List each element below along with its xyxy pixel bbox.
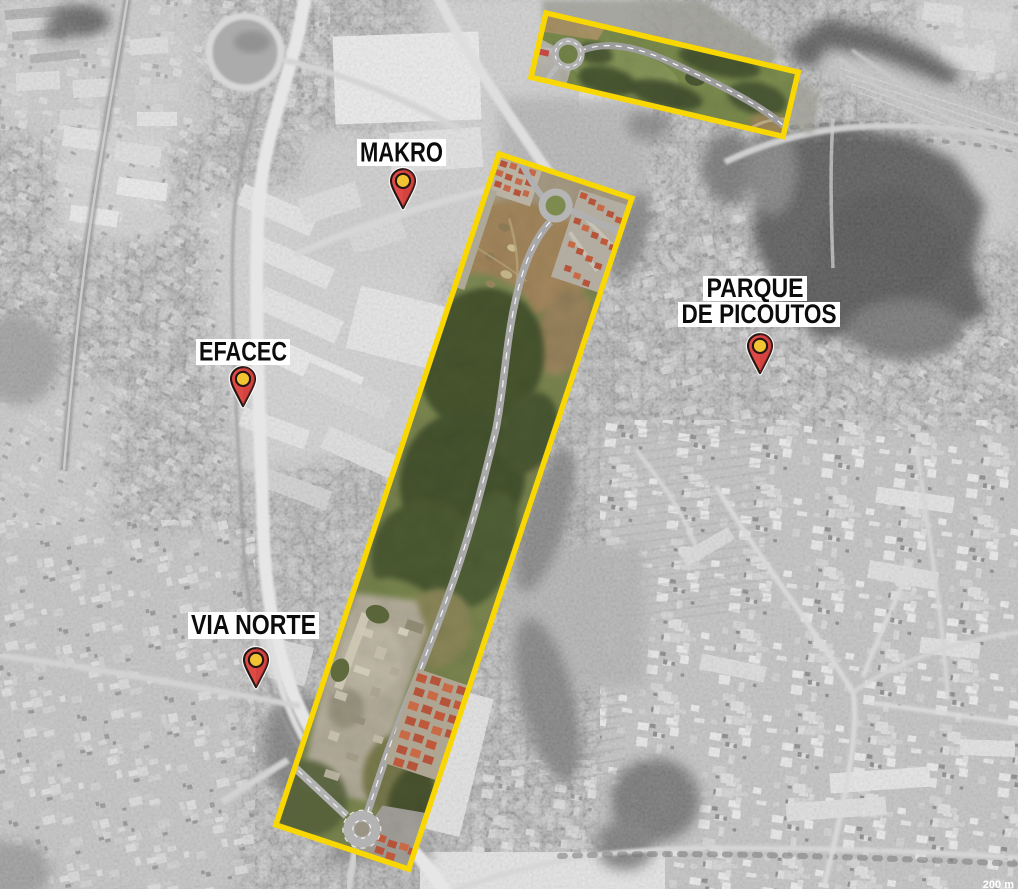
svg-text:EFACEC: EFACEC bbox=[199, 337, 287, 367]
svg-text:MAKRO: MAKRO bbox=[360, 137, 443, 168]
svg-text:200 m: 200 m bbox=[983, 879, 1014, 889]
svg-text:VIA NORTE: VIA NORTE bbox=[191, 609, 316, 640]
svg-text:DE PICOUTOS: DE PICOUTOS bbox=[682, 299, 837, 329]
